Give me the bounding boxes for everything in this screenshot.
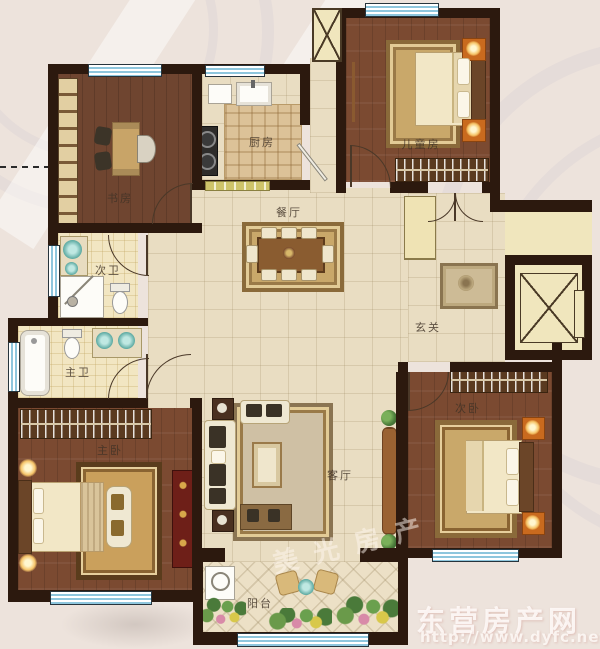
wall: [398, 548, 408, 645]
kids-lamp: [466, 122, 481, 137]
guest-chair: [94, 151, 112, 171]
master-toilet-bowl: [64, 337, 80, 359]
coffee-table: [252, 442, 282, 488]
guest-bath-door-leaf: [146, 235, 148, 275]
wall: [492, 200, 592, 212]
shower-head: [67, 296, 78, 307]
master-bath-sink: [96, 332, 113, 349]
kids-wall-mirror: [352, 62, 355, 122]
red-display-cabinet: [172, 470, 194, 568]
guest-bath-label: 次卫: [86, 262, 130, 278]
kitchen-faucet: [251, 80, 255, 88]
wall: [450, 362, 562, 372]
bookshelf: [58, 78, 78, 228]
bench-item: [268, 509, 280, 522]
guest-bath-sink: [63, 240, 82, 259]
dining-chair: [281, 269, 297, 281]
master-headboard: [18, 480, 32, 554]
bench-item: [111, 494, 124, 510]
dining-chair: [246, 245, 258, 263]
guest-chair: [94, 126, 113, 147]
master-pillow: [33, 518, 44, 544]
wall: [490, 8, 500, 212]
elevator-lobby-floor: [505, 212, 592, 255]
master-pillow: [33, 488, 44, 514]
master-bath-sink: [118, 332, 135, 349]
study-window: [88, 64, 162, 77]
balcony-table: [298, 579, 314, 595]
living-label: 客厅: [318, 467, 362, 483]
second-bed-label: 次卧: [446, 400, 490, 416]
kids-headboard: [471, 50, 486, 128]
wall: [552, 340, 562, 558]
bathtub-drain: [31, 338, 37, 344]
dining-centerpiece: [283, 247, 295, 259]
master-bed-door-leaf: [146, 354, 148, 398]
loveseat-cushion: [266, 404, 282, 417]
kids-wardrobe: [395, 158, 489, 182]
wall: [192, 64, 202, 183]
elevator-door: [574, 290, 585, 338]
dining-label: 餐厅: [265, 204, 313, 220]
bench-item: [111, 520, 124, 536]
second-lamp: [525, 420, 540, 435]
study-door-leaf: [190, 183, 192, 223]
sofa-pillow: [211, 450, 226, 464]
balcony-window: [237, 633, 369, 647]
master-bed-window: [50, 591, 152, 605]
bench-item: [247, 509, 259, 522]
dining-chair: [322, 245, 334, 263]
master-bed-blanket: [80, 482, 104, 552]
end-table-plate: [217, 403, 227, 413]
dimension-dash-line: [0, 166, 50, 168]
dining-chair: [301, 269, 317, 281]
dining-chair: [281, 227, 297, 239]
master-bath-label: 主卫: [56, 364, 100, 380]
master-bath-window: [8, 342, 20, 392]
master-lamp: [19, 459, 37, 477]
balcony-plants: [336, 594, 398, 630]
desk-chair: [137, 135, 156, 163]
guest-toilet-bowl: [112, 291, 128, 314]
second-bed-door-leaf: [408, 372, 410, 410]
kitchen-sliding-door: [205, 181, 270, 191]
wall: [8, 398, 148, 408]
sofa-cushion: [209, 426, 226, 448]
guest-bath-window: [48, 245, 60, 297]
entry-doormat-medallion: [458, 275, 474, 291]
wall: [300, 64, 310, 125]
kids-room-door-leaf: [350, 145, 352, 187]
plant: [381, 410, 397, 426]
wall: [10, 318, 148, 326]
wall: [390, 182, 428, 193]
elevator-shaft: [520, 273, 578, 343]
sofa-cushion: [209, 488, 226, 504]
kitchen-label: 厨房: [238, 134, 286, 150]
wall: [505, 350, 592, 360]
balcony-label: 阳台: [238, 595, 282, 611]
wall: [505, 255, 592, 265]
dining-chair: [301, 227, 317, 239]
second-bed-window: [432, 549, 519, 562]
study-label: 书房: [96, 190, 144, 206]
master-lamp: [19, 554, 37, 572]
kids-room-label: 儿童房: [388, 136, 454, 152]
kitchen-window: [205, 65, 265, 77]
wall: [48, 64, 58, 233]
entry-door-leaf: [454, 193, 456, 221]
kids-lamp: [466, 41, 481, 56]
dining-chair: [261, 269, 277, 281]
background-blob: [60, 600, 210, 649]
second-pillow: [506, 448, 519, 475]
shower-stall: [60, 276, 104, 318]
master-bed-label: 主卧: [88, 442, 132, 458]
wall: [398, 362, 408, 372]
wall: [8, 398, 18, 602]
wall: [48, 223, 202, 233]
kids-pillow: [457, 58, 470, 85]
loveseat-cushion: [246, 404, 262, 417]
kids-pillow: [457, 91, 470, 118]
kids-room-window: [365, 3, 439, 17]
flue-shaft: [312, 8, 342, 62]
wall: [505, 255, 515, 360]
master-wardrobe: [20, 409, 152, 439]
wall: [193, 548, 203, 645]
floorplan-canvas: 书房 厨房 儿童房 餐厅 次卫 主卫 主卧 客厅 次卧 阳台 玄关 美光房产 东…: [0, 0, 600, 649]
study-desk: [112, 122, 140, 176]
washing-machine-door: [211, 572, 230, 591]
balcony-plants: [268, 608, 332, 630]
sofa-cushion: [209, 464, 226, 486]
kitchen-counter-box: [208, 84, 232, 104]
dining-chair: [261, 227, 277, 239]
entry-label: 玄关: [406, 319, 450, 335]
end-table-plate: [217, 515, 227, 525]
guest-bath-plant: [65, 262, 78, 275]
site-url-watermark: http://www.dyfc.net: [420, 628, 600, 646]
